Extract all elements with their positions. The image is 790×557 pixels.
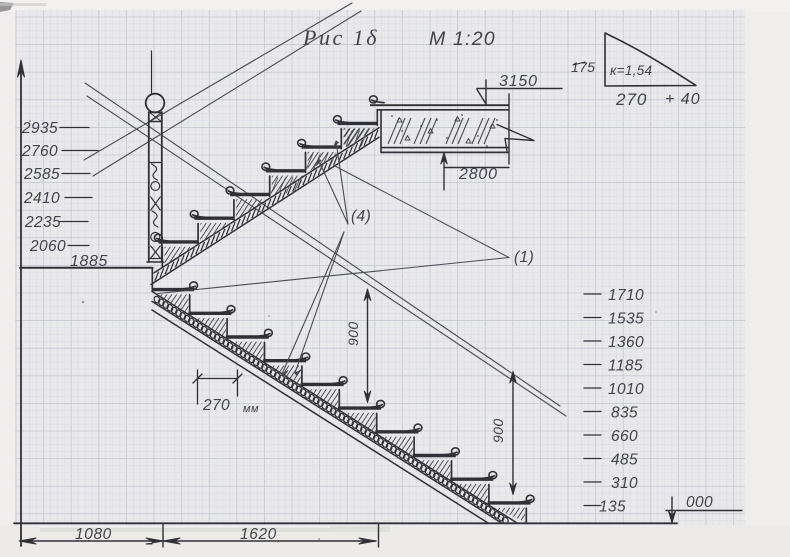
svg-text:175: 175 — [571, 59, 595, 75]
svg-text:485: 485 — [611, 452, 638, 469]
svg-text:(4): (4) — [351, 208, 371, 225]
svg-text:270: 270 — [615, 90, 647, 109]
svg-text:2935: 2935 — [21, 120, 58, 137]
svg-text:+ 40: + 40 — [665, 91, 701, 108]
svg-text:3150: 3150 — [499, 73, 538, 90]
svg-text:2585: 2585 — [23, 166, 60, 183]
svg-text:2235: 2235 — [24, 214, 61, 231]
svg-text:2760: 2760 — [21, 143, 58, 160]
svg-text:000: 000 — [686, 494, 713, 511]
svg-text:к=1,54: к=1,54 — [610, 63, 652, 78]
svg-text:1535: 1535 — [608, 311, 644, 328]
svg-text:310: 310 — [611, 475, 638, 492]
svg-text:135: 135 — [599, 499, 626, 516]
svg-text:(1): (1) — [514, 249, 534, 266]
svg-text:мм: мм — [243, 403, 259, 415]
svg-text:900: 900 — [345, 321, 361, 346]
svg-text:1010: 1010 — [608, 381, 644, 398]
svg-text:660: 660 — [611, 428, 638, 445]
svg-text:1080: 1080 — [75, 526, 112, 543]
svg-text:1620: 1620 — [240, 526, 277, 543]
svg-text:1710: 1710 — [608, 287, 644, 304]
svg-text:1360: 1360 — [608, 334, 644, 351]
svg-text:М 1:20: М 1:20 — [429, 28, 496, 50]
svg-text:Рис 1δ: Рис 1δ — [302, 25, 379, 50]
svg-text:835: 835 — [611, 405, 638, 422]
svg-text:270: 270 — [202, 397, 230, 414]
svg-text:1185: 1185 — [608, 358, 643, 375]
svg-text:2800: 2800 — [458, 166, 498, 183]
svg-text:900: 900 — [490, 418, 506, 443]
svg-text:2060: 2060 — [29, 238, 66, 255]
svg-text:2410: 2410 — [23, 190, 60, 207]
